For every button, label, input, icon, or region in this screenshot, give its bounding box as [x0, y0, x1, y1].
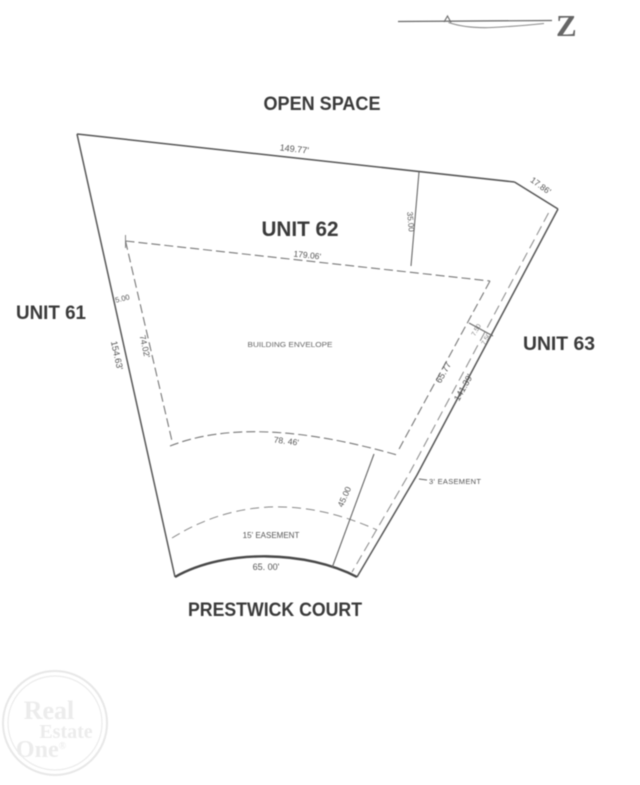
svg-text:65. 00': 65. 00' — [253, 562, 280, 572]
svg-text:PRESTWICK COURT: PRESTWICK COURT — [188, 600, 362, 621]
svg-text:35.00: 35.00 — [405, 211, 416, 232]
svg-text:UNIT 62: UNIT 62 — [262, 218, 339, 241]
svg-text:UNIT 63: UNIT 63 — [523, 334, 595, 355]
svg-text:45.00: 45.00 — [335, 485, 353, 509]
svg-text:3' EASEMENT: 3' EASEMENT — [429, 477, 481, 486]
svg-text:65.77: 65.77 — [434, 360, 454, 385]
svg-text:149.77': 149.77' — [279, 142, 309, 155]
svg-text:Z: Z — [556, 8, 577, 43]
svg-text:15' EASEMENT: 15' EASEMENT — [243, 531, 300, 540]
svg-text:74.02': 74.02' — [138, 334, 153, 359]
svg-text:UNIT 61: UNIT 61 — [16, 303, 86, 324]
svg-text:OPEN SPACE: OPEN SPACE — [264, 94, 381, 115]
svg-text:One®: One® — [16, 737, 67, 763]
svg-text:BUILDING ENVELOPE: BUILDING ENVELOPE — [248, 342, 333, 349]
svg-text:154.63': 154.63' — [109, 340, 125, 371]
svg-text:5.00: 5.00 — [114, 292, 130, 304]
svg-text:78. 46': 78. 46' — [273, 435, 300, 448]
